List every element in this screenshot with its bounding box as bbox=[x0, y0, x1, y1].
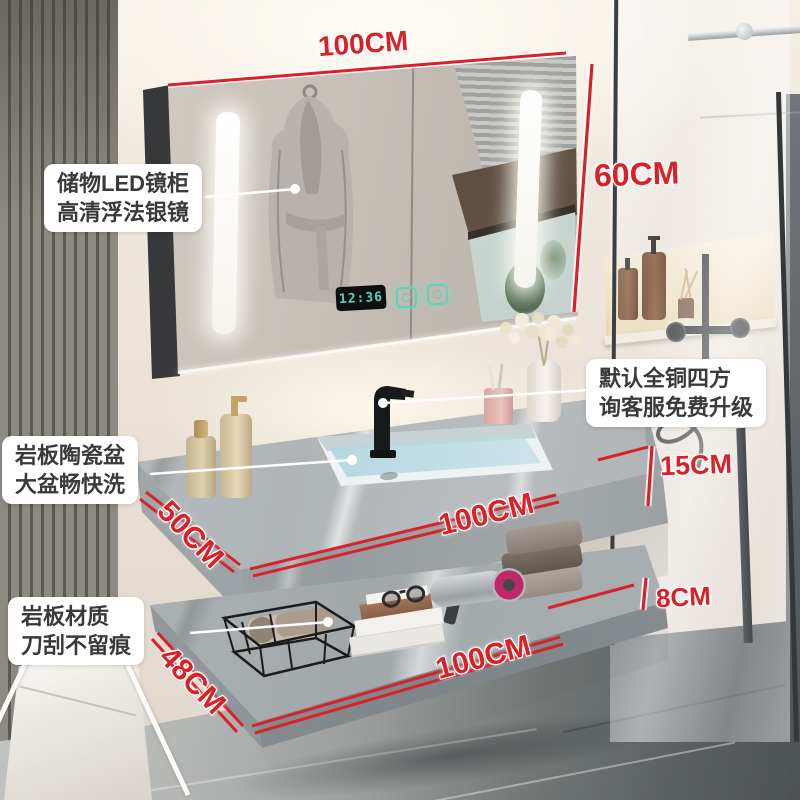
dimension-shelf-thickness: 8CM bbox=[655, 581, 711, 615]
dimension-counter-thickness: 15CM bbox=[659, 449, 732, 482]
dried-flowers bbox=[538, 330, 546, 338]
callout-text: 询客服免费升级 bbox=[599, 393, 753, 422]
sunglasses-lens bbox=[405, 584, 427, 605]
callout-mirror-cabinet: 储物LED镜柜 高清浮法银镜 bbox=[44, 164, 202, 232]
robe-hanger-loop bbox=[304, 86, 316, 98]
lotion-pump-bottle bbox=[220, 414, 252, 498]
mirror-clock-display: 12:36 bbox=[335, 285, 386, 312]
support-bar-flange bbox=[736, 23, 753, 40]
callout-text: 储物LED镜柜 bbox=[57, 169, 189, 198]
defog-icon bbox=[395, 286, 417, 308]
lotion-pump-spout bbox=[231, 396, 247, 402]
callout-text: 岩板材质 bbox=[21, 602, 131, 631]
toothbrush-cup bbox=[484, 388, 513, 424]
clock-time: 12:36 bbox=[339, 289, 384, 306]
callout-faucet: 默认全铜四方 询客服免费升级 bbox=[586, 359, 766, 427]
power-icon-glyph bbox=[433, 290, 442, 299]
product-photo-bathroom-vanity: 12:36 bbox=[0, 0, 800, 800]
faucet-body bbox=[374, 386, 406, 456]
hair-dryer-face bbox=[492, 568, 526, 602]
plant-reflection bbox=[540, 240, 566, 280]
flower-vase bbox=[527, 360, 561, 422]
defog-icon-glyph bbox=[402, 293, 411, 302]
callout-text: 高清浮法银镜 bbox=[57, 198, 189, 227]
callout-text: 岩板陶瓷盆 bbox=[15, 441, 125, 470]
callout-text: 默认全铜四方 bbox=[599, 364, 753, 393]
callout-slate: 岩板材质 刀刮不留痕 bbox=[8, 597, 144, 665]
lotion-bottle-cap bbox=[194, 420, 208, 438]
black-square-faucet bbox=[360, 378, 430, 458]
sunglasses-bridge bbox=[399, 590, 405, 594]
mirror-led-strip bbox=[212, 112, 241, 334]
power-icon bbox=[426, 283, 448, 305]
faucet-base bbox=[370, 450, 396, 458]
dimension-mirror-width: 100CM bbox=[317, 25, 409, 63]
callout-text: 大盆畅快洗 bbox=[15, 470, 125, 499]
lotion-bottle bbox=[186, 436, 216, 498]
wire-storage-basket bbox=[218, 590, 362, 694]
callout-text: 刀刮不留痕 bbox=[21, 631, 131, 660]
callout-basin: 岩板陶瓷盆 大盆畅快洗 bbox=[2, 436, 138, 504]
dimension-mirror-height: 60CM bbox=[593, 155, 680, 195]
